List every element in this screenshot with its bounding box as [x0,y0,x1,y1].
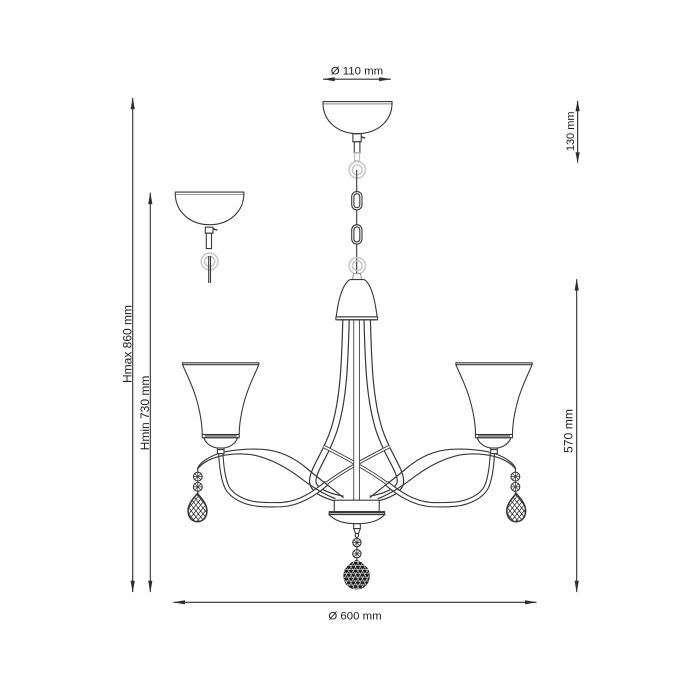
svg-text:130 mm: 130 mm [565,111,577,151]
svg-text:Ø 110 mm: Ø 110 mm [331,66,383,78]
svg-text:Ø 600 mm: Ø 600 mm [328,611,381,623]
svg-text:570 mm: 570 mm [562,409,576,453]
